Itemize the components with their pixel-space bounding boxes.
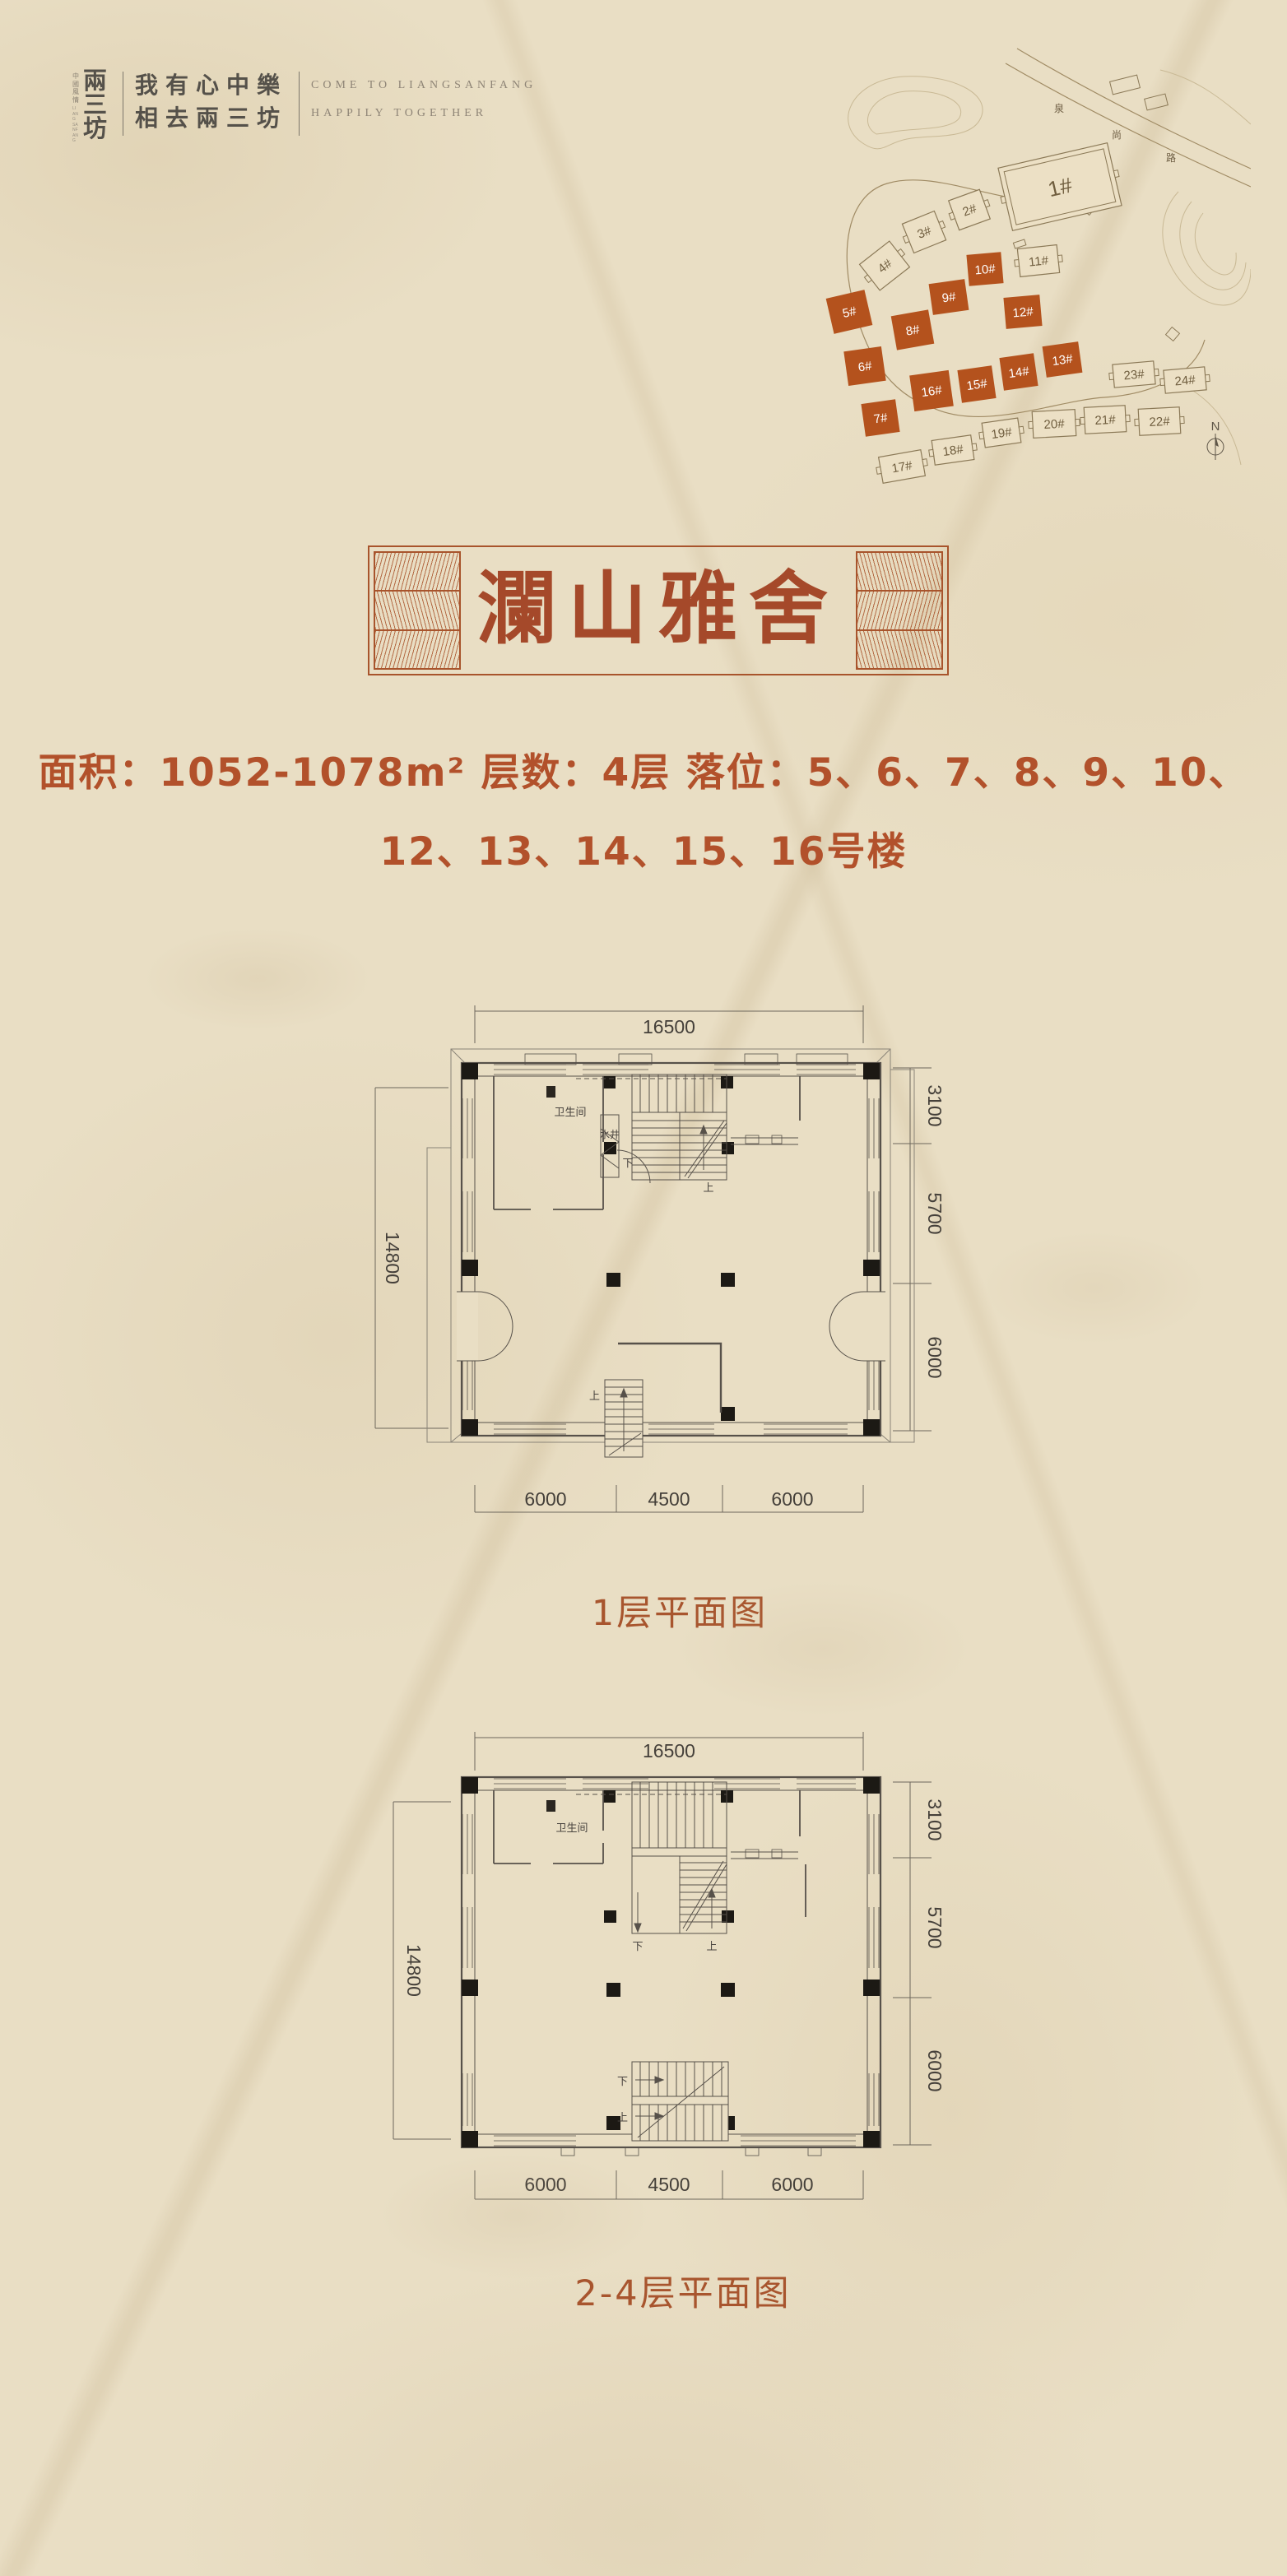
plan2-interior-fixtures [731, 1790, 806, 1917]
hatch-cell [374, 551, 461, 592]
brand-header: 中國風情 LIANGSANFANG 兩三坊 我有心中樂 相去兩三坊 COME T… [72, 69, 537, 145]
brand-seal: 中國風情 LIANGSANFANG [72, 72, 80, 144]
project-title: 瀾山雅舍 [465, 547, 852, 674]
plan1-interior-fixtures [731, 1076, 800, 1144]
plaque-hatch-left [374, 551, 461, 670]
dim-bottom-2: 4500 [648, 1488, 690, 1510]
header-divider [123, 72, 123, 136]
map-building-label: 18# [942, 443, 965, 459]
stair-up-label: 上 [703, 1181, 713, 1194]
map-building-label: 11# [1028, 253, 1049, 269]
dim-right-1: 3100 [924, 1799, 946, 1840]
dim-right-1: 3100 [924, 1084, 946, 1126]
floor-plan-1: 16500 14800 3100 5700 6000 6000 4500 600… [354, 1000, 955, 1534]
map-building-17: 17# [875, 449, 930, 484]
dim-right-3: 6000 [924, 1336, 946, 1378]
map-building-23: 23# [1108, 360, 1159, 388]
dim-right-2: 5700 [924, 1192, 946, 1234]
map-building-3: 3# [899, 210, 950, 255]
stair-up-label: 上 [706, 1940, 717, 1952]
plan1-canopy [427, 1049, 914, 1442]
map-building-label: 20# [1043, 417, 1066, 432]
plan2-stair-core [576, 1782, 727, 1933]
plan1-side-doors [457, 1292, 885, 1361]
map-building-7: 7# [861, 399, 899, 436]
map-building-label: 22# [1149, 415, 1171, 429]
map-building-label: 7# [873, 411, 890, 426]
plan1-columns [462, 1063, 880, 1436]
road-name-char: 路 [1166, 151, 1176, 164]
map-building-label: 16# [921, 383, 944, 400]
map-building-15: 15# [957, 365, 996, 402]
map-building-label: 23# [1123, 367, 1145, 383]
slogan-line-1: 我有心中樂 [135, 69, 287, 102]
english-line-1: COME TO LIANGSANFANG [311, 73, 537, 97]
dim-bottom-3: 6000 [771, 1488, 813, 1510]
header-divider [299, 72, 300, 136]
hatch-cell [374, 629, 461, 670]
plan1-walls [462, 1063, 880, 1436]
plan2-caption: 2-4层平面图 [354, 2265, 1012, 2316]
map-building-label: 15# [966, 377, 989, 393]
map-building-label: 6# [857, 359, 874, 374]
dim-left: 14800 [382, 1232, 403, 1284]
map-building-label: 10# [974, 262, 997, 277]
map-building-label: 9# [941, 290, 958, 305]
plaque-hatch-right [856, 551, 943, 670]
title-plaque: 瀾山雅舍 [368, 545, 949, 675]
entry-stair-up-label: 上 [589, 1390, 600, 1402]
brand-slogan: 我有心中樂 相去兩三坊 [135, 69, 287, 135]
english-line-2: HAPPILY TOGETHER [311, 101, 537, 125]
dim-top: 16500 [643, 1016, 695, 1037]
dim-right-3: 6000 [924, 2049, 946, 2091]
map-building-22: 22# [1134, 406, 1185, 435]
map-building-5: 5# [826, 290, 873, 334]
dim-right-2: 5700 [924, 1906, 946, 1948]
site-map: 1#2#3#4#11#17#18#19#20#21#22#23#24#5#6#7… [806, 45, 1251, 498]
road-name-char: 尚 [1112, 129, 1122, 141]
map-building-14: 14# [999, 353, 1038, 390]
compass-icon: N [1207, 420, 1224, 460]
map-building-16: 16# [909, 370, 954, 411]
map-building-label: 13# [1052, 352, 1075, 369]
map-building-21: 21# [1080, 405, 1131, 434]
map-building-10: 10# [966, 252, 1003, 286]
map-building-9: 9# [929, 279, 969, 315]
map-building-8: 8# [891, 309, 935, 350]
brand-seal-en: LIANGSANFANG [72, 106, 78, 144]
plan1-caption: 1层平面图 [351, 1585, 1009, 1636]
plan1-bathroom [494, 1076, 603, 1209]
shaft-label: 水井 [600, 1129, 620, 1140]
hatch-cell [856, 629, 943, 670]
brand-seal-cn: 中國風情 [72, 72, 80, 104]
bathroom-label: 卫生间 [555, 1822, 588, 1834]
poster-page: 中國風情 LIANGSANFANG 兩三坊 我有心中樂 相去兩三坊 COME T… [0, 0, 1287, 2576]
stair-down-label: 下 [632, 1940, 643, 1952]
map-building-12: 12# [1003, 295, 1042, 329]
brand-logo: 兩三坊 [83, 69, 111, 141]
map-building-label: 19# [991, 425, 1014, 442]
bathroom-label: 卫生间 [554, 1106, 586, 1118]
plan1-stair-core [576, 1074, 727, 1183]
dim-left: 14800 [403, 1944, 425, 1997]
dim-bottom-1: 6000 [524, 2174, 566, 2195]
map-building-18: 18# [927, 434, 978, 466]
road-name-char: 泉 [1054, 103, 1064, 114]
stair-down-label: 下 [622, 1157, 633, 1169]
floor-plan-2: 16500 14800 3100 5700 6000 6000 4500 600… [354, 1724, 955, 2230]
dim-bottom-2: 4500 [648, 2174, 690, 2195]
plan1-entry-stair [605, 1380, 643, 1457]
map-building-label: 24# [1174, 373, 1196, 388]
hatch-cell [856, 551, 943, 592]
slogan-line-2: 相去兩三坊 [135, 102, 287, 135]
map-building-20: 20# [1028, 409, 1080, 438]
map-building-label: 21# [1094, 413, 1117, 428]
map-building-13: 13# [1043, 341, 1083, 378]
dim-bottom-3: 6000 [771, 2174, 813, 2195]
unit-info-line-2: 12、13、14、15、16号楼 [0, 819, 1287, 876]
map-building-19: 19# [978, 417, 1025, 448]
dim-bottom-1: 6000 [524, 1488, 566, 1510]
map-building-11: 11# [1013, 244, 1063, 277]
unit-info-line-1: 面积：1052-1078m² 层数：4层 落位：5、6、7、8、9、10、 [0, 740, 1287, 797]
map-buildings: 1#2#3#4#11#17#18#19#20#21#22#23#24#5#6#7… [826, 142, 1210, 485]
plan1-windows [462, 1054, 879, 1434]
plan2-lower-stair [632, 2062, 728, 2141]
hatch-cell [374, 590, 461, 630]
map-building-24: 24# [1159, 366, 1210, 393]
map-building-4: 4# [857, 239, 913, 293]
hatch-cell [856, 590, 943, 630]
map-building-2: 2# [945, 188, 994, 232]
map-building-label: 12# [1012, 304, 1034, 320]
brand-english: COME TO LIANGSANFANG HAPPILY TOGETHER [311, 69, 537, 125]
map-building-6: 6# [843, 346, 885, 386]
map-building-1: 1# [994, 142, 1126, 232]
map-building-label: 14# [1008, 364, 1031, 381]
dim-top: 16500 [643, 1740, 695, 1761]
lower-stair-up-label: 上 [617, 2111, 628, 2123]
compass-label: N [1211, 420, 1220, 434]
lower-stair-down-label: 下 [617, 2075, 628, 2087]
